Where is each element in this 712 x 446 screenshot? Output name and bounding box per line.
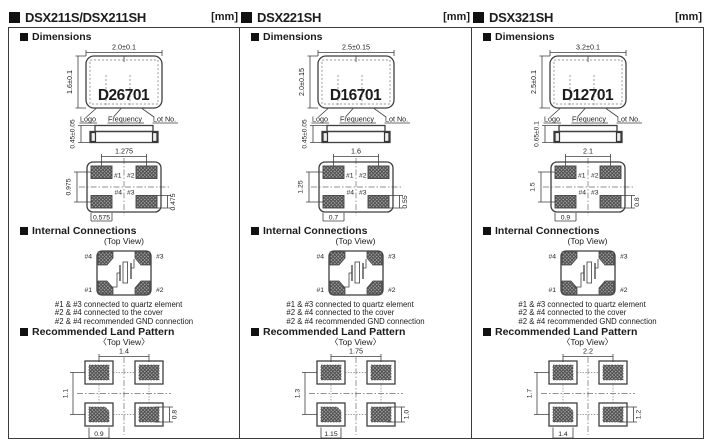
- unit-label: [mm]: [675, 11, 702, 23]
- thickness-dimension-label: 0.65±0.1: [533, 121, 540, 147]
- connection-notes: #1 & #3 connected to quartz element #2 &…: [286, 301, 424, 326]
- land-pitch-v-label: 1.1: [63, 389, 70, 399]
- internal-top-view-label: (Top View): [472, 237, 703, 246]
- pin4-label: #4: [346, 190, 354, 197]
- pin1-label: #1: [84, 287, 92, 294]
- pin1-label: #1: [346, 173, 354, 180]
- panel-body: Dimensions 2.5±0.15 2.0±0.15 D16701 Logo…: [240, 27, 472, 439]
- internal-top-view-label: (Top View): [240, 237, 471, 246]
- land-pattern-drawing: 2.2 1.7 1.4 1.2: [488, 347, 688, 439]
- width-dimension-label: 2.0±0.1: [112, 43, 136, 52]
- note-line: #2 & #4 recommended GND connection: [55, 318, 193, 326]
- black-square-icon: [251, 328, 259, 336]
- land-pitch-h-label: 1.75: [349, 347, 363, 356]
- land-pitch-v-label: 1.7: [526, 389, 533, 399]
- section-dimensions-label: Dimensions: [32, 31, 92, 43]
- height-dimension-label: 1.6±0.1: [65, 70, 74, 94]
- land-pattern-drawing: 1.4 1.1 0.9 0.8: [24, 347, 224, 439]
- product-panel: DSX321SH [mm] Dimensions 3.2±0.1 2.5±0.1…: [472, 7, 704, 439]
- land-pad-height-label: 0.8: [172, 410, 179, 420]
- connection-notes: #1 & #3 connected to quartz element #2 &…: [518, 301, 656, 326]
- pad-pitch-h-label: 1.6: [351, 147, 361, 156]
- pin4-label: #4: [578, 190, 586, 197]
- pad-height-label: 0.8: [634, 197, 641, 207]
- land-pad-width-label: 1.15: [324, 431, 337, 438]
- land-pad-height-label: 1.2: [635, 410, 642, 420]
- chip-marking: D16701: [329, 87, 381, 104]
- package-bottom-view-drawing: 2.1 1.5 #1 #2 #4 #3 0.9 0.8: [488, 147, 688, 225]
- pin3-label: #3: [620, 254, 628, 261]
- land-pitch-h-label: 1.4: [119, 347, 129, 356]
- unit-label: [mm]: [211, 11, 238, 23]
- panel-body: Dimensions 3.2±0.1 2.5±0.1 D12701 Logo F…: [472, 27, 704, 439]
- pin3-label: #3: [359, 190, 367, 197]
- internal-top-view-label: (Top View): [9, 237, 239, 246]
- panel-body: Dimensions 2.0±0.1 1.6±0.1 D26701 Logo F…: [8, 27, 240, 439]
- black-square-icon: [20, 328, 28, 336]
- pin3-label: #3: [591, 190, 599, 197]
- section-dimensions: Dimensions: [9, 31, 239, 43]
- internal-connections-drawing: #4 #3 #1 #2: [488, 246, 688, 300]
- thickness-dimension-label: 0.45±0.05: [301, 119, 308, 149]
- product-panel: DSX221SH [mm] Dimensions 2.5±0.15 2.0±0.…: [240, 7, 472, 439]
- pad-width-label: 0.9: [560, 215, 570, 222]
- section-dimensions: Dimensions: [472, 31, 703, 43]
- pad-pitch-h-label: 2.1: [583, 147, 593, 156]
- panel-header: DSX221SH [mm]: [240, 7, 472, 27]
- pin4-label: #4: [84, 254, 92, 261]
- land-pad-width-label: 1.4: [558, 431, 568, 438]
- product-title: DSX321SH: [489, 10, 553, 25]
- black-square-icon: [9, 12, 20, 23]
- internal-connections-drawing: #4 #3 #1 #2: [24, 246, 224, 300]
- pin2-label: #2: [359, 173, 367, 180]
- pin2-label: #2: [127, 173, 135, 180]
- chip-marking: D12701: [561, 87, 613, 104]
- package-bottom-view-drawing: 1.275 0.975 #1 #2 #4 #3 0.575 0.475: [24, 147, 224, 225]
- pin1-label: #1: [114, 173, 122, 180]
- pad-width-label: 0.575: [93, 215, 110, 222]
- panel-header: DSX321SH [mm]: [472, 7, 704, 27]
- pad-height-label: 0.55: [402, 195, 409, 208]
- pin2-label: #2: [620, 287, 628, 294]
- pin1-label: #1: [316, 287, 324, 294]
- section-dimensions-label: Dimensions: [263, 31, 323, 43]
- note-line: #2 & #4 recommended GND connection: [518, 318, 656, 326]
- pad-height-label: 0.475: [170, 193, 177, 210]
- black-square-icon: [241, 12, 252, 23]
- package-side-view-drawing: 0.45±0.05: [24, 123, 224, 147]
- black-square-icon: [251, 33, 259, 41]
- section-dimensions: Dimensions: [240, 31, 471, 43]
- width-dimension-label: 2.5±0.15: [342, 43, 370, 52]
- black-square-icon: [20, 33, 28, 41]
- product-title: DSX221SH: [257, 10, 321, 25]
- connection-notes: #1 & #3 connected to quartz element #2 &…: [55, 301, 193, 326]
- package-side-view-drawing: 0.45±0.05: [256, 123, 456, 147]
- thickness-dimension-label: 0.45±0.05: [70, 119, 77, 149]
- land-pitch-h-label: 2.2: [583, 347, 593, 356]
- datasheet-page: DSX211S/DSX211SH [mm] Dimensions 2.0±0.1…: [0, 0, 712, 446]
- chip-marking: D26701: [98, 87, 150, 104]
- pin2-label: #2: [591, 173, 599, 180]
- black-square-icon: [483, 328, 491, 336]
- black-square-icon: [251, 227, 259, 235]
- land-pad-height-label: 1.0: [403, 410, 410, 420]
- black-square-icon: [483, 227, 491, 235]
- pin4-label: #4: [114, 190, 122, 197]
- product-panel: DSX211S/DSX211SH [mm] Dimensions 2.0±0.1…: [8, 7, 240, 439]
- black-square-icon: [473, 12, 484, 23]
- package-top-view-drawing: 2.5±0.15 2.0±0.15 D16701 Logo Frequency …: [256, 43, 456, 123]
- pad-pitch-h-label: 1.275: [115, 147, 133, 156]
- package-top-view-drawing: 3.2±0.1 2.5±0.1 D12701 Logo Frequency Lo…: [488, 43, 688, 123]
- package-side-view-drawing: 0.65±0.1: [488, 123, 688, 147]
- height-dimension-label: 2.5±0.1: [529, 70, 538, 94]
- pad-pitch-v-label: 1.25: [297, 180, 304, 193]
- width-dimension-label: 3.2±0.1: [576, 43, 600, 52]
- black-square-icon: [20, 227, 28, 235]
- land-pad-width-label: 0.9: [94, 431, 104, 438]
- pin1-label: #1: [548, 287, 556, 294]
- product-title: DSX211S/DSX211SH: [25, 10, 146, 25]
- black-square-icon: [483, 33, 491, 41]
- unit-label: [mm]: [443, 11, 470, 23]
- pad-pitch-v-label: 1.5: [529, 182, 536, 192]
- pin3-label: #3: [388, 254, 396, 261]
- land-pattern-drawing: 1.75 1.3 1.15 1.0: [256, 347, 456, 439]
- pad-width-label: 0.7: [328, 215, 338, 222]
- land-pitch-v-label: 1.3: [294, 389, 301, 399]
- pin4-label: #4: [316, 254, 324, 261]
- product-panels: DSX211S/DSX211SH [mm] Dimensions 2.0±0.1…: [8, 7, 704, 439]
- pin2-label: #2: [388, 287, 396, 294]
- pad-pitch-v-label: 0.975: [66, 178, 73, 195]
- height-dimension-label: 2.0±0.15: [297, 68, 306, 96]
- internal-connections-drawing: #4 #3 #1 #2: [256, 246, 456, 300]
- pin2-label: #2: [156, 287, 164, 294]
- section-dimensions-label: Dimensions: [495, 31, 555, 43]
- pin3-label: #3: [156, 254, 164, 261]
- package-bottom-view-drawing: 1.6 1.25 #1 #2 #4 #3 0.7 0.55: [256, 147, 456, 225]
- pin1-label: #1: [578, 173, 586, 180]
- package-top-view-drawing: 2.0±0.1 1.6±0.1 D26701 Logo Frequency Lo…: [24, 43, 224, 123]
- panel-header: DSX211S/DSX211SH [mm]: [8, 7, 240, 27]
- pin3-label: #3: [127, 190, 135, 197]
- note-line: #2 & #4 recommended GND connection: [286, 318, 424, 326]
- pin4-label: #4: [548, 254, 556, 261]
